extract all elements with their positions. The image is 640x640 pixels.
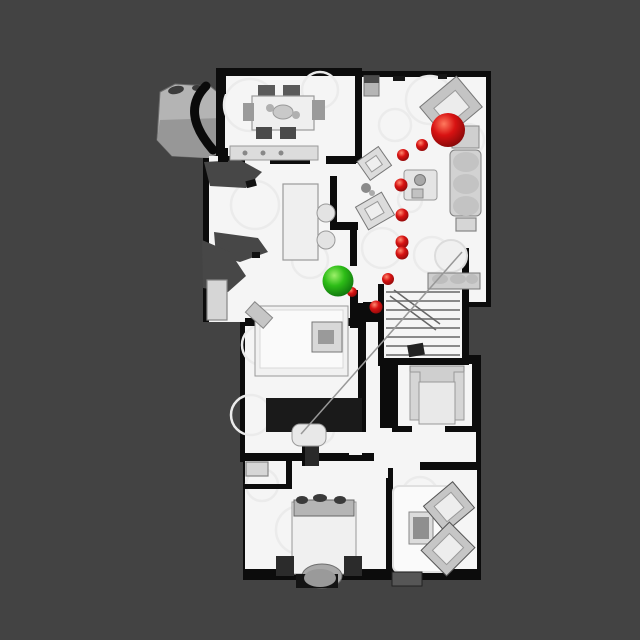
floorplan-render: [0, 0, 640, 640]
bed-middle: [245, 302, 348, 376]
round-rug: [435, 240, 467, 272]
start-sphere: [323, 266, 354, 297]
path-waypoint: [370, 301, 383, 314]
square-table: [404, 170, 437, 200]
scene-viewport: [0, 0, 640, 640]
door-jamb-top: [218, 70, 226, 94]
goal-sphere: [431, 113, 465, 147]
cabinet: [207, 280, 227, 320]
path-waypoint: [396, 247, 409, 260]
speaker: [364, 76, 379, 96]
path-waypoint: [395, 179, 408, 192]
door-jamb-bottom: [218, 148, 228, 162]
recliner: [410, 366, 464, 424]
sideboard: [230, 146, 318, 160]
path-waypoint: [382, 273, 394, 285]
path-waypoint: [397, 149, 409, 161]
side-table: [456, 218, 476, 231]
path-waypoint: [416, 139, 428, 151]
path-waypoint: [396, 209, 409, 222]
